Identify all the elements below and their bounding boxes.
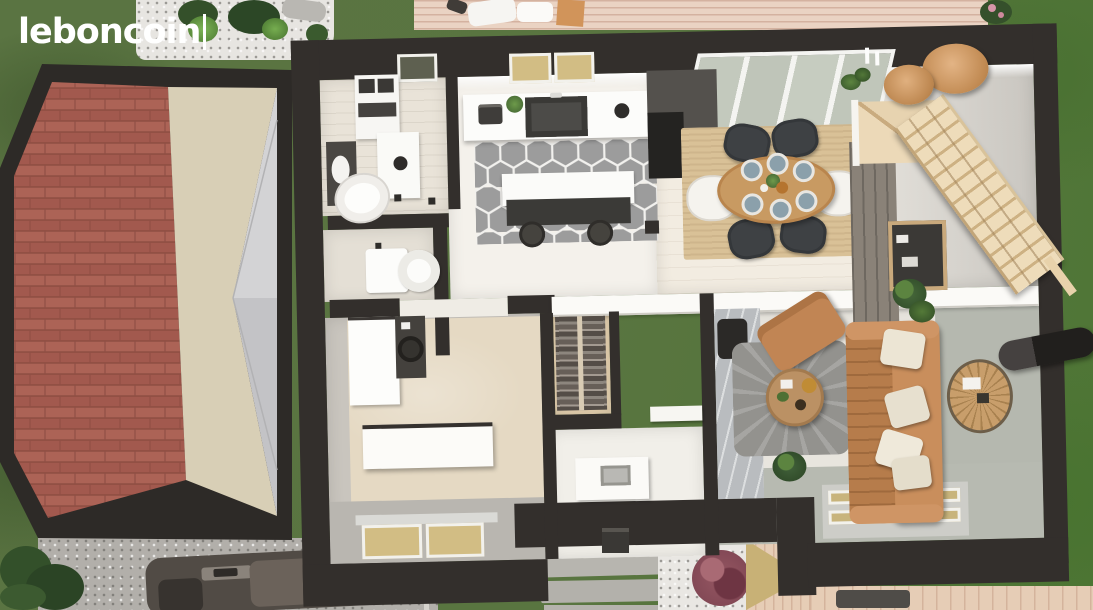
plant-bright [262,18,288,40]
brand-logo-text: leboncoin [18,12,200,52]
wall-stub [645,220,659,233]
listing-render: leboncoin [0,0,1093,610]
bath-shelf [650,406,702,422]
kitchen-island-base [506,197,631,226]
paver [544,605,664,610]
floor-dot [375,243,381,249]
wall-dressing-right [609,311,621,415]
wall-bedroom-top-b [508,295,555,314]
roof-cutaway [0,55,300,550]
stair-newel-white [851,100,859,166]
floor-dot [394,194,401,201]
wall-wc-hall [433,225,450,355]
shelf-item [902,257,918,267]
faucet [550,93,562,98]
flower-pink [988,4,996,12]
wall-bottom-right [807,537,1069,587]
kitchen-sink [525,96,588,137]
hedge [0,584,46,610]
shelf-item [896,235,908,243]
bedroom-window [426,523,485,558]
brand-logo: leboncoin [18,12,206,52]
text-cursor [203,14,206,50]
bedroom-window [362,524,423,559]
dryer-front [358,102,396,117]
mailbox [602,528,629,553]
wall-dressing-bottom [547,413,621,430]
wall-bedroom-top-a [330,298,400,318]
vanity-sink-slot [600,465,630,486]
floor-dot [428,198,435,205]
car-plate [213,568,237,577]
candle [875,51,879,65]
side-table-item [962,377,980,389]
washer-lid [359,79,375,93]
flowering-bush [980,0,1012,24]
wall-bottom-left [303,559,549,607]
flower-pink [998,12,1004,18]
house-floorplan [291,23,1070,606]
deck-mat-orange [556,0,585,27]
sofa-pillow [891,455,933,492]
sofa-pillow [879,328,926,370]
sofa-armrest [849,504,943,524]
table-book [780,379,792,388]
washer-lid [378,78,394,92]
side-table-item-dark [977,393,989,403]
fridge-dark-front [647,112,684,179]
sofa [845,320,944,524]
deck-furniture-white [517,2,553,22]
laundry-skylight [397,53,438,82]
kitchen-window [554,52,595,83]
car-rear-glass [158,578,204,610]
wardrobe [348,316,400,405]
kitchen-window [509,53,552,84]
candle [865,48,869,64]
laptop [401,322,410,329]
sideboard [362,422,493,469]
toaster [478,104,502,125]
